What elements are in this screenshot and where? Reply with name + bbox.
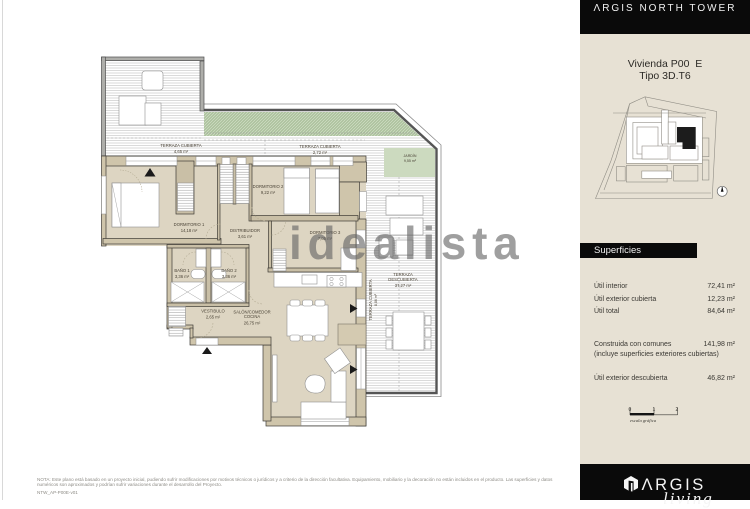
svg-text:TERRAZA CUBIERTA: TERRAZA CUBIERTA	[368, 279, 373, 320]
svg-text:14,18 m²: 14,18 m²	[181, 228, 198, 233]
svg-text:escala gráfica: escala gráfica	[630, 418, 657, 423]
svg-text:4,65 m²: 4,65 m²	[174, 149, 189, 154]
svg-text:DISTRIBUIDOR: DISTRIBUIDOR	[230, 228, 260, 233]
svg-text:9,55 m²: 9,55 m²	[404, 159, 417, 163]
svg-text:DESCUBIERTA: DESCUBIERTA	[388, 277, 418, 282]
svg-text:DORMITORIO 2: DORMITORIO 2	[253, 184, 284, 189]
svg-text:3,36 m²: 3,36 m²	[222, 274, 237, 279]
svg-text:37,27 m²: 37,27 m²	[395, 283, 412, 288]
svg-text:3,61 m²: 3,61 m²	[238, 234, 253, 239]
svg-text:26,75 m²: 26,75 m²	[244, 321, 261, 326]
svg-text:BAÑO 1: BAÑO 1	[174, 268, 190, 273]
svg-text:BAÑO 2: BAÑO 2	[221, 268, 237, 273]
svg-text:8,86 m²: 8,86 m²	[374, 293, 378, 306]
svg-text:DORMITORIO 1: DORMITORIO 1	[174, 222, 205, 227]
svg-text:JARDÍN: JARDÍN	[404, 154, 417, 158]
svg-text:2: 2	[676, 407, 679, 413]
svg-text:9,22 m²: 9,22 m²	[261, 190, 276, 195]
svg-text:COCINA: COCINA	[244, 314, 260, 319]
svg-text:2,72 m²: 2,72 m²	[313, 150, 328, 155]
svg-text:TERRAZA CUBIERTA: TERRAZA CUBIERTA	[299, 144, 340, 149]
svg-text:3,36 m²: 3,36 m²	[175, 274, 190, 279]
svg-text:2,65 m²: 2,65 m²	[206, 315, 221, 320]
svg-text:VESTIBULO: VESTIBULO	[201, 309, 225, 314]
svg-text:TERRAZA CUBIERTA: TERRAZA CUBIERTA	[160, 143, 201, 148]
